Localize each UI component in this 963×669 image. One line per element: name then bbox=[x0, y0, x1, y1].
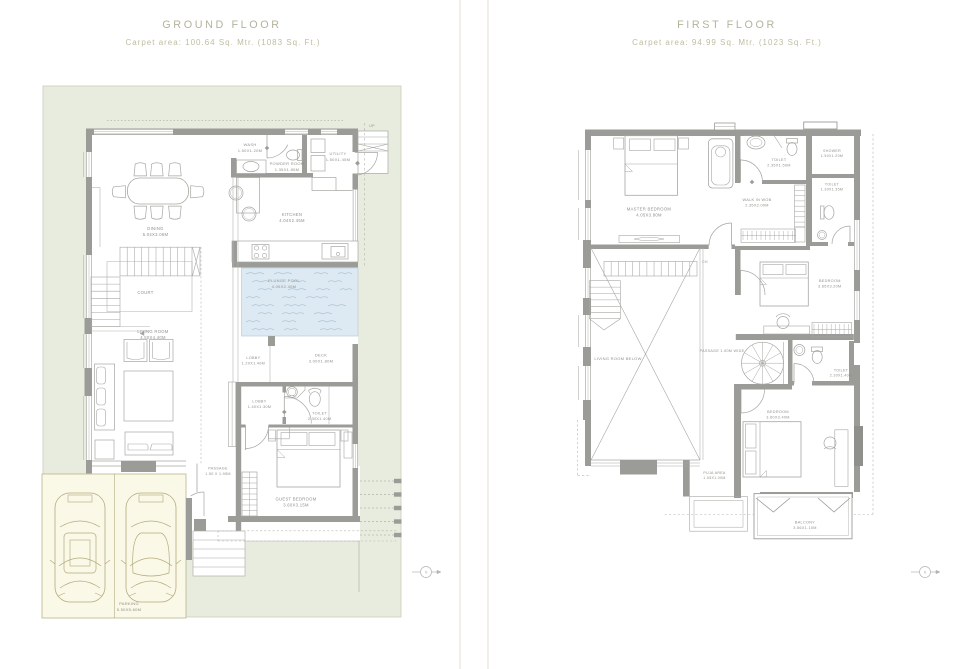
svg-text:DECK: DECK bbox=[315, 353, 327, 358]
svg-text:2.30X1.40M: 2.30X1.40M bbox=[830, 374, 852, 378]
svg-text:BALCONY: BALCONY bbox=[795, 521, 815, 525]
svg-text:FIRST FLOOR: FIRST FLOOR bbox=[677, 19, 777, 31]
svg-text:PARKING: PARKING bbox=[119, 601, 139, 606]
svg-text:1.30X1.35M: 1.30X1.35M bbox=[821, 188, 843, 192]
svg-text:1.50X1.20M: 1.50X1.20M bbox=[238, 148, 263, 153]
svg-text:Carpet area: 100.64 Sq. Mtr. (: Carpet area: 100.64 Sq. Mtr. (1083 Sq. F… bbox=[125, 38, 320, 47]
svg-text:N: N bbox=[425, 571, 428, 575]
svg-text:1.50 X 1.95M: 1.50 X 1.95M bbox=[205, 472, 231, 476]
svg-text:LIVING ROOM: LIVING ROOM bbox=[137, 329, 168, 334]
svg-text:LOBBY: LOBBY bbox=[246, 356, 260, 360]
svg-text:1.40X1.30M: 1.40X1.30M bbox=[248, 405, 271, 409]
svg-text:PLUNGE POOL: PLUNGE POOL bbox=[268, 278, 300, 283]
svg-text:PASSAGE 1.00M WIDE: PASSAGE 1.00M WIDE bbox=[700, 349, 745, 353]
svg-text:TOILET: TOILET bbox=[771, 158, 786, 162]
svg-text:1.20X1.40M: 1.20X1.40M bbox=[242, 362, 265, 366]
svg-text:UTILITY: UTILITY bbox=[330, 151, 347, 156]
svg-text:1.05X1.00M: 1.05X1.00M bbox=[703, 476, 725, 480]
svg-text:PASSAGE: PASSAGE bbox=[208, 467, 228, 471]
svg-text:3.65X3.20M: 3.65X3.20M bbox=[818, 285, 841, 289]
svg-text:GROUND FLOOR: GROUND FLOOR bbox=[162, 19, 281, 31]
svg-text:KITCHEN: KITCHEN bbox=[282, 212, 302, 217]
svg-text:POWDER ROOM: POWDER ROOM bbox=[270, 161, 305, 166]
svg-text:2.35X2.00M: 2.35X2.00M bbox=[745, 204, 768, 208]
svg-text:CH: CH bbox=[702, 260, 708, 264]
svg-text:COURT: COURT bbox=[137, 290, 153, 295]
svg-text:3.56X1.10M: 3.56X1.10M bbox=[793, 526, 816, 530]
svg-text:BEDROOM: BEDROOM bbox=[767, 410, 789, 414]
svg-text:1.35X1.85M: 1.35X1.85M bbox=[275, 167, 300, 172]
svg-text:5.50X5.60M: 5.50X5.60M bbox=[117, 607, 142, 612]
svg-text:TOILET: TOILET bbox=[312, 412, 327, 416]
svg-text:LOBBY: LOBBY bbox=[252, 400, 266, 404]
svg-text:3.00X1.80M: 3.00X1.80M bbox=[309, 358, 334, 363]
svg-text:TOILET: TOILET bbox=[825, 183, 840, 187]
svg-text:4.04X2.45M: 4.04X2.45M bbox=[279, 218, 305, 223]
svg-text:2.35X1.50M: 2.35X1.50M bbox=[767, 164, 790, 168]
svg-text:3.60X3.40M: 3.60X3.40M bbox=[766, 416, 789, 420]
svg-text:UP: UP bbox=[369, 124, 375, 128]
svg-text:WASH: WASH bbox=[243, 142, 256, 147]
svg-text:3.60X3.15M: 3.60X3.15M bbox=[283, 503, 309, 508]
svg-text:LIVING ROOM BELOW: LIVING ROOM BELOW bbox=[594, 356, 641, 361]
svg-text:1.50X1.20M: 1.50X1.20M bbox=[821, 154, 843, 158]
svg-text:N: N bbox=[924, 571, 927, 575]
svg-text:BEDROOM: BEDROOM bbox=[819, 279, 841, 283]
svg-text:1.50X1.45M: 1.50X1.45M bbox=[326, 157, 351, 162]
svg-text:WALK IN WOB: WALK IN WOB bbox=[743, 198, 772, 202]
svg-text:MASTER BEDROOM: MASTER BEDROOM bbox=[627, 207, 672, 212]
svg-text:SHOWER: SHOWER bbox=[823, 149, 841, 153]
svg-text:4.05X2.40M: 4.05X2.40M bbox=[272, 284, 297, 289]
svg-text:TOILET: TOILET bbox=[834, 369, 849, 373]
svg-text:2.30X1.40M: 2.30X1.40M bbox=[308, 417, 331, 421]
svg-text:PUJA AREA: PUJA AREA bbox=[703, 471, 726, 475]
svg-text:5.04X3.06M: 5.04X3.06M bbox=[143, 232, 169, 237]
svg-text:Carpet area: 94.99 Sq. Mtr. (1: Carpet area: 94.99 Sq. Mtr. (1023 Sq. Ft… bbox=[632, 38, 822, 47]
svg-text:DINING: DINING bbox=[147, 226, 163, 231]
svg-text:4.05X3.80M: 4.05X3.80M bbox=[636, 213, 662, 218]
svg-text:GUEST BEDROOM: GUEST BEDROOM bbox=[275, 497, 316, 502]
